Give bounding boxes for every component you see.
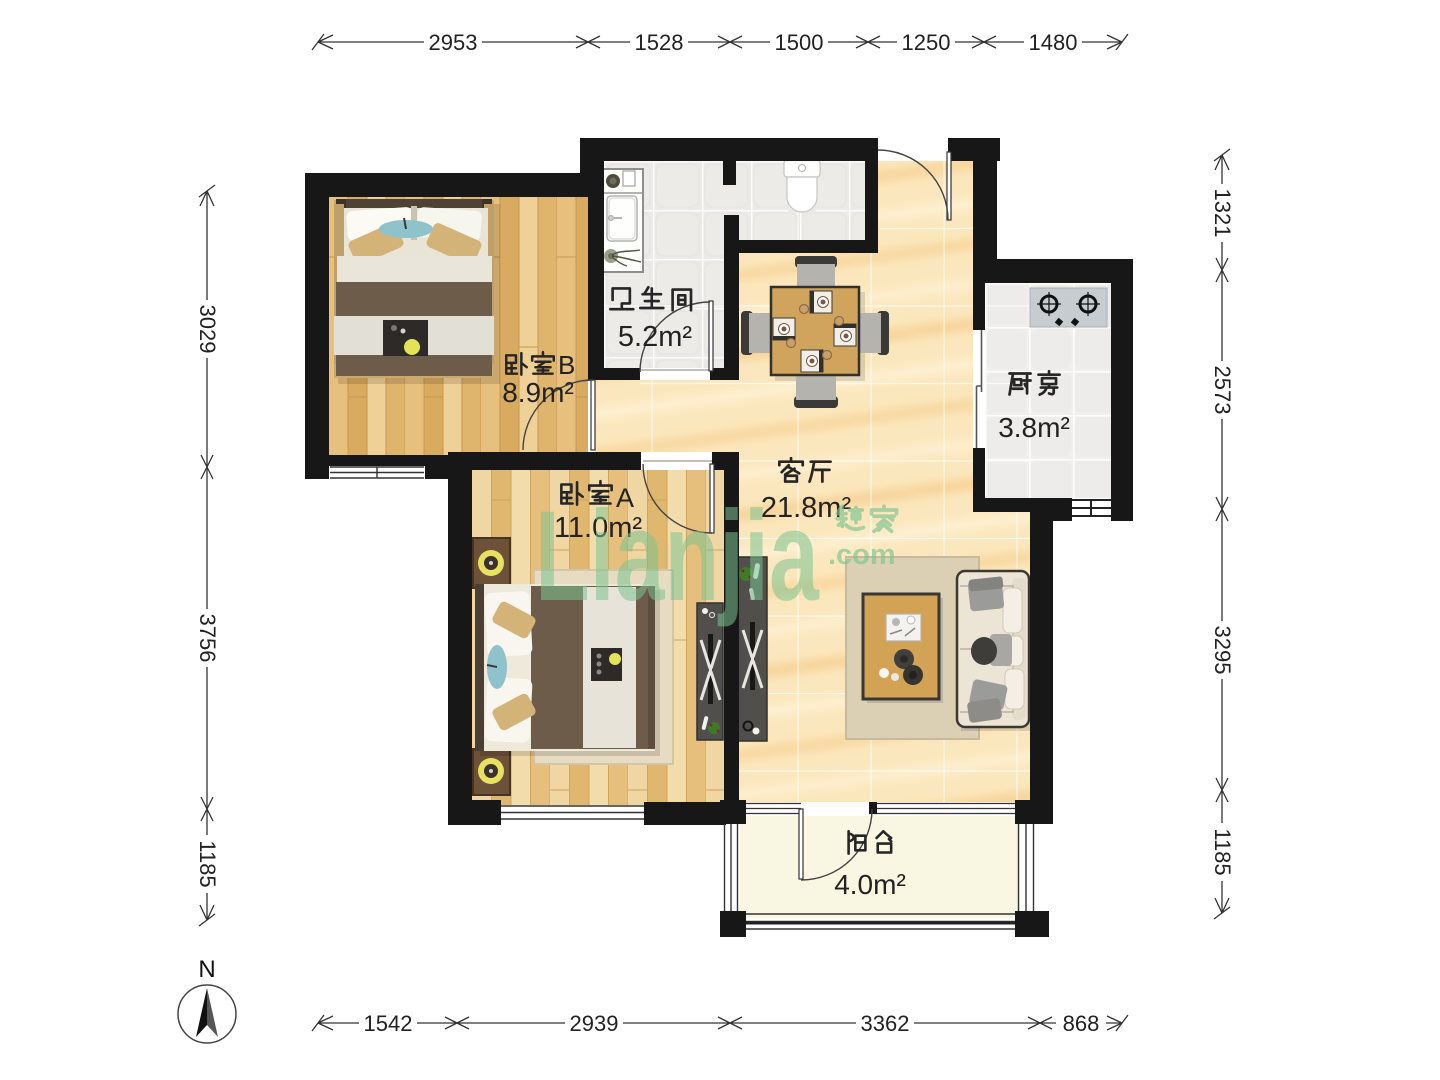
svg-text:1480: 1480 [1029, 30, 1078, 55]
svg-text:3295: 3295 [1210, 626, 1235, 675]
svg-text:1500: 1500 [775, 30, 824, 55]
svg-text:3362: 3362 [861, 1011, 910, 1036]
svg-text:3756: 3756 [195, 614, 220, 663]
svg-text:.com: .com [828, 539, 896, 571]
svg-text:1185: 1185 [195, 840, 220, 887]
svg-text:2953: 2953 [429, 30, 478, 55]
svg-text:1542: 1542 [364, 1011, 413, 1036]
svg-text:8.9m²: 8.9m² [502, 377, 574, 408]
svg-text:3029: 3029 [195, 305, 220, 354]
svg-text:N: N [198, 956, 215, 983]
svg-text:1528: 1528 [635, 30, 684, 55]
svg-text:868: 868 [1063, 1011, 1100, 1036]
svg-text:1321: 1321 [1210, 189, 1235, 238]
svg-text:Lianjia: Lianjia [535, 485, 820, 628]
svg-text:4.0m²: 4.0m² [834, 869, 906, 900]
svg-text:2939: 2939 [570, 1011, 619, 1036]
svg-text:1250: 1250 [902, 30, 951, 55]
svg-text:2573: 2573 [1210, 366, 1235, 415]
svg-text:3.8m²: 3.8m² [998, 412, 1070, 443]
svg-text:5.2m²: 5.2m² [618, 321, 692, 353]
svg-text:1185: 1185 [1210, 828, 1235, 875]
svg-text:B: B [558, 350, 575, 380]
